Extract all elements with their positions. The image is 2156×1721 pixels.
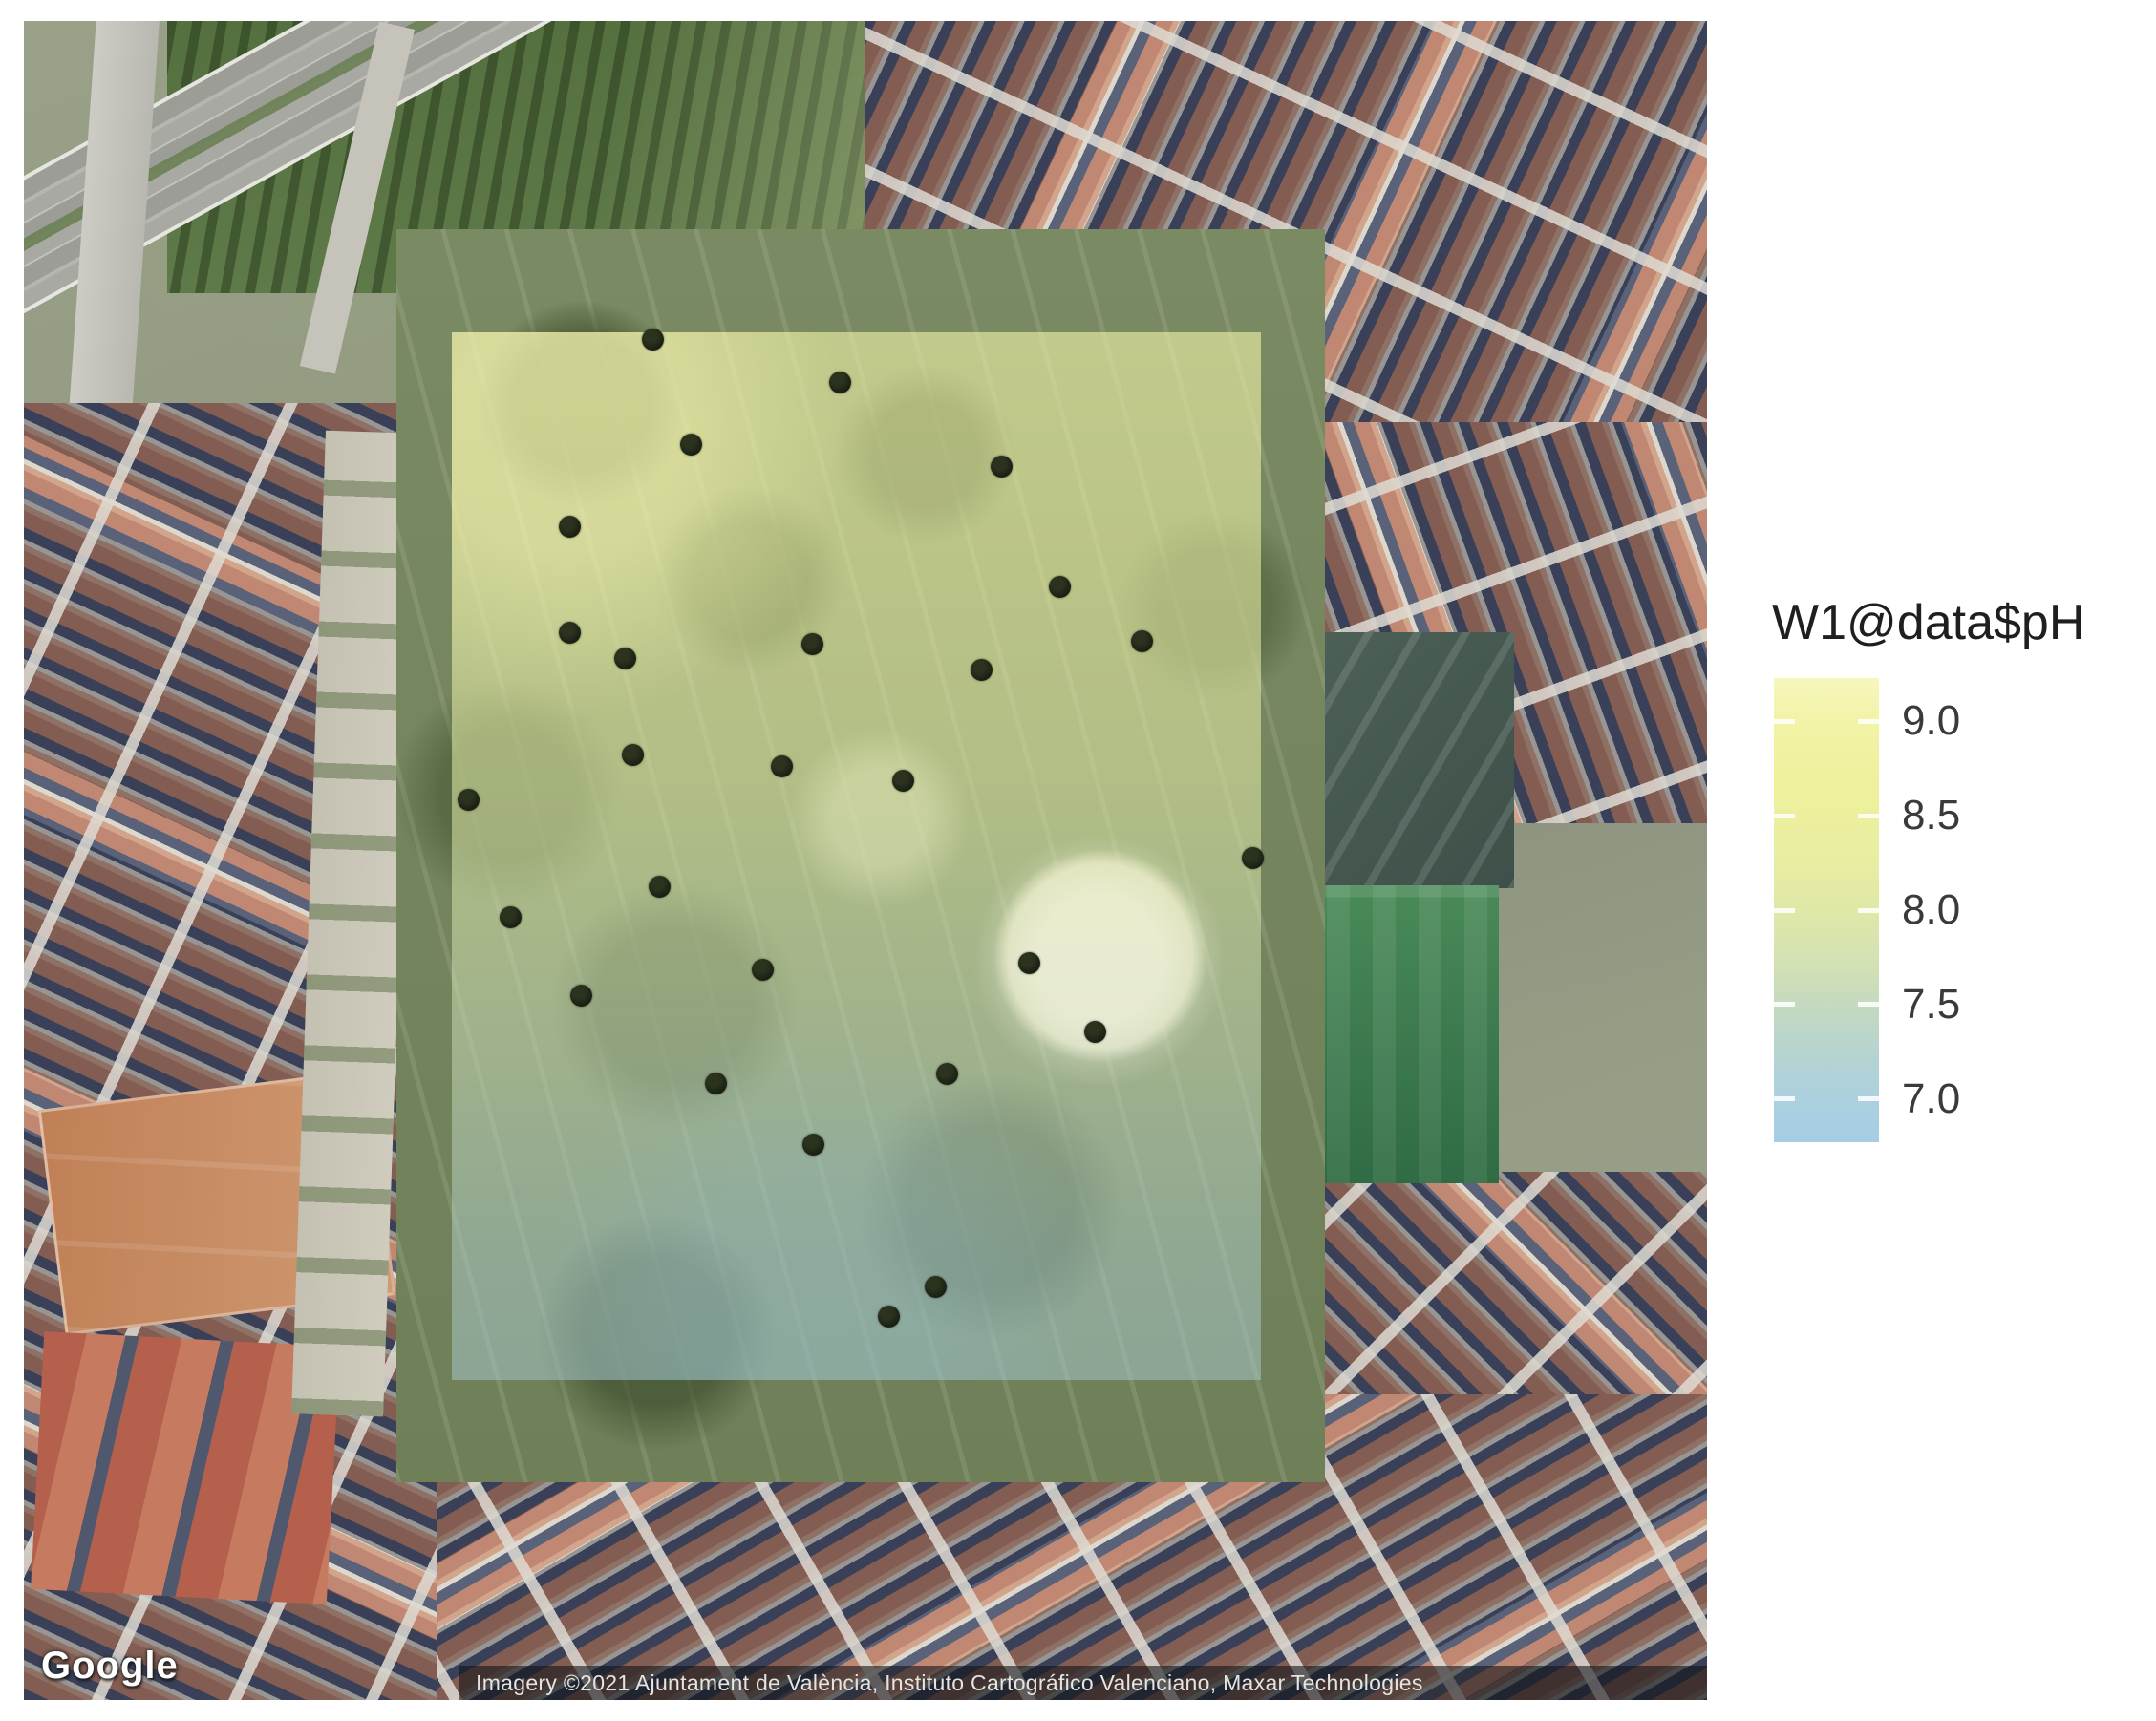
legend-tick-label: 9.0 — [1902, 697, 1960, 745]
sample-point — [614, 648, 636, 669]
attribution-bar: Imagery ©2021 Ajuntament de València, In… — [459, 1666, 1707, 1700]
sample-point — [1242, 847, 1264, 869]
sample-point — [878, 1306, 900, 1328]
sample-point — [1131, 630, 1153, 652]
sample-point — [649, 876, 671, 898]
sample-point — [642, 329, 664, 351]
sample-point — [936, 1063, 958, 1085]
legend: W1@data$pH 9.08.58.07.57.0 — [1770, 594, 2152, 1167]
plot-canvas: Google Imagery ©2021 Ajuntament de Valèn… — [0, 0, 2156, 1721]
sample-point — [802, 1134, 824, 1156]
sample-point — [1018, 952, 1040, 974]
sample-point — [559, 622, 581, 644]
legend-tick-label: 8.0 — [1902, 886, 1960, 934]
sample-point — [622, 744, 644, 766]
sample-point — [570, 985, 592, 1007]
sample-point — [1084, 1021, 1106, 1043]
sample-point — [801, 633, 823, 655]
legend-tick-label: 8.5 — [1902, 792, 1960, 839]
sample-point — [892, 770, 914, 792]
sample-point — [771, 755, 793, 777]
legend-tick-label: 7.5 — [1902, 981, 1960, 1029]
sample-points-layer — [24, 21, 1707, 1700]
satellite-map: Google Imagery ©2021 Ajuntament de Valèn… — [24, 21, 1707, 1700]
google-logo: Google — [41, 1645, 179, 1688]
sample-point — [1049, 576, 1071, 598]
sample-point — [559, 516, 581, 538]
sample-point — [705, 1073, 727, 1094]
sample-point — [752, 959, 774, 981]
legend-labels: 9.08.58.07.57.0 — [1770, 678, 2152, 1142]
legend-tick-label: 7.0 — [1902, 1075, 1960, 1123]
sample-point — [680, 434, 702, 456]
sample-point — [971, 659, 993, 681]
attribution-text: Imagery ©2021 Ajuntament de València, In… — [476, 1666, 1423, 1700]
legend-title: W1@data$pH — [1772, 594, 2084, 651]
sample-point — [829, 372, 851, 393]
sample-point — [925, 1276, 947, 1298]
sample-point — [458, 789, 480, 811]
sample-point — [991, 456, 1013, 478]
sample-point — [500, 906, 522, 928]
